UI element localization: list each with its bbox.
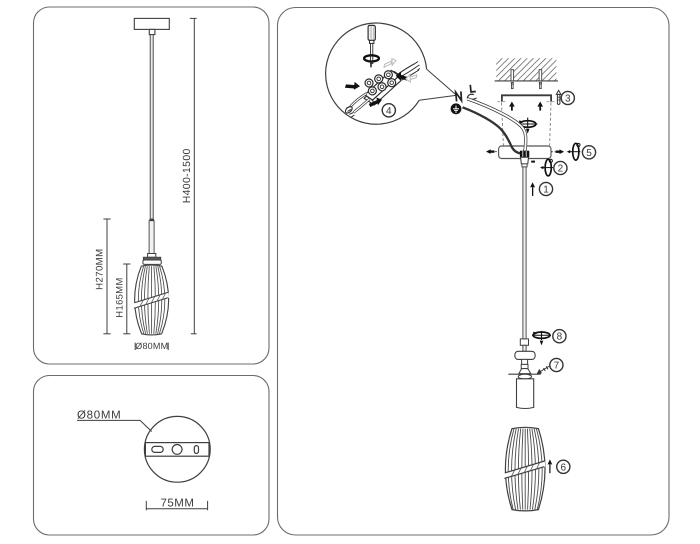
svg-text:Ø80MM: Ø80MM bbox=[77, 410, 121, 422]
svg-text:8: 8 bbox=[557, 332, 563, 343]
svg-text:Ø80MM: Ø80MM bbox=[135, 341, 168, 351]
svg-text:1: 1 bbox=[543, 185, 549, 196]
svg-text:6: 6 bbox=[561, 462, 567, 473]
svg-text:H400-1500: H400-1500 bbox=[182, 148, 193, 203]
svg-text:3: 3 bbox=[565, 94, 571, 105]
svg-text:5: 5 bbox=[586, 148, 592, 159]
svg-text:H165MM: H165MM bbox=[114, 277, 125, 317]
svg-text:7: 7 bbox=[554, 361, 560, 372]
svg-text:4: 4 bbox=[386, 106, 392, 117]
svg-text:H270MM: H270MM bbox=[95, 249, 106, 290]
svg-text:2: 2 bbox=[558, 164, 564, 175]
svg-text:75MM: 75MM bbox=[161, 498, 195, 510]
